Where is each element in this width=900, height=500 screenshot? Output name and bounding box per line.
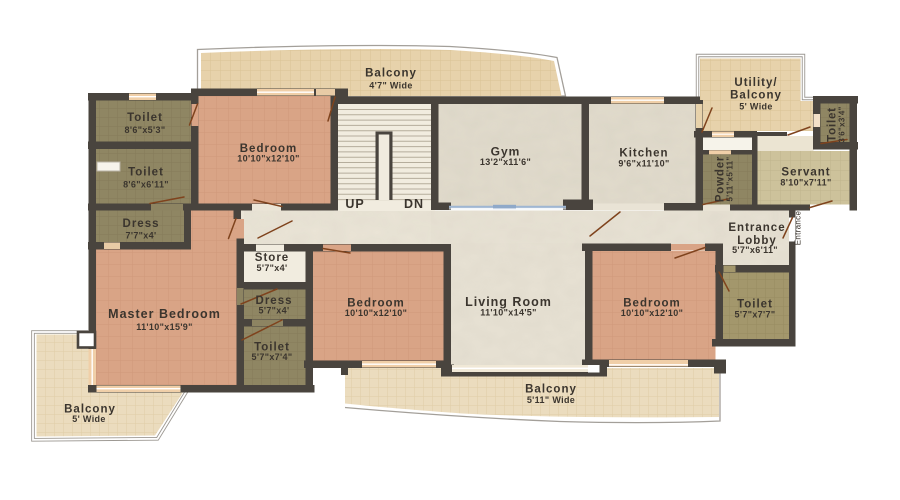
svg-text:Entrance: Entrance [728, 222, 785, 234]
svg-text:5'7"x4': 5'7"x4' [258, 306, 289, 316]
svg-text:5' Wide: 5' Wide [72, 414, 106, 424]
svg-text:8'6"x6'11": 8'6"x6'11" [123, 180, 169, 190]
svg-text:8'6"x5'3": 8'6"x5'3" [125, 125, 166, 135]
svg-text:Toilet: Toilet [128, 167, 164, 179]
svg-text:Balcony: Balcony [730, 90, 782, 102]
svg-text:8'10"x7'11": 8'10"x7'11" [780, 178, 831, 188]
svg-text:4'7" Wide: 4'7" Wide [369, 81, 413, 91]
svg-text:10'10"x12'10": 10'10"x12'10" [237, 154, 299, 164]
svg-text:5' Wide: 5' Wide [739, 102, 773, 112]
svg-text:5'11"x5'11": 5'11"x5'11" [726, 157, 735, 202]
svg-text:Dress: Dress [123, 218, 160, 230]
svg-text:Utility/: Utility/ [734, 77, 777, 89]
svg-text:13'2"x11'6": 13'2"x11'6" [480, 157, 531, 167]
svg-text:UP: UP [345, 197, 364, 211]
svg-text:3'6"x3'4": 3'6"x3'4" [838, 106, 847, 142]
svg-text:Balcony: Balcony [365, 68, 417, 80]
svg-text:5'7"x4': 5'7"x4' [256, 263, 287, 273]
svg-text:5'7"x7'7": 5'7"x7'7" [735, 310, 776, 320]
svg-text:DN: DN [404, 197, 424, 211]
svg-text:Toilet: Toilet [127, 112, 163, 124]
svg-text:Entrance: Entrance [794, 211, 803, 246]
svg-text:10'10"x12'10": 10'10"x12'10" [345, 308, 407, 318]
svg-text:5'11" Wide: 5'11" Wide [527, 395, 575, 405]
svg-text:9'6"x11'10": 9'6"x11'10" [618, 159, 669, 169]
svg-text:10'10"x12'10": 10'10"x12'10" [621, 308, 683, 318]
svg-text:5'7"x7'4": 5'7"x7'4" [252, 352, 293, 362]
svg-text:Master Bedroom: Master Bedroom [108, 307, 221, 321]
svg-text:11'10"x14'5": 11'10"x14'5" [480, 308, 537, 318]
svg-text:11'10"x15'9": 11'10"x15'9" [136, 322, 193, 332]
svg-text:7'7"x4': 7'7"x4' [125, 231, 156, 241]
svg-text:Balcony: Balcony [525, 384, 577, 396]
svg-text:5'7"x6'11": 5'7"x6'11" [732, 245, 778, 255]
